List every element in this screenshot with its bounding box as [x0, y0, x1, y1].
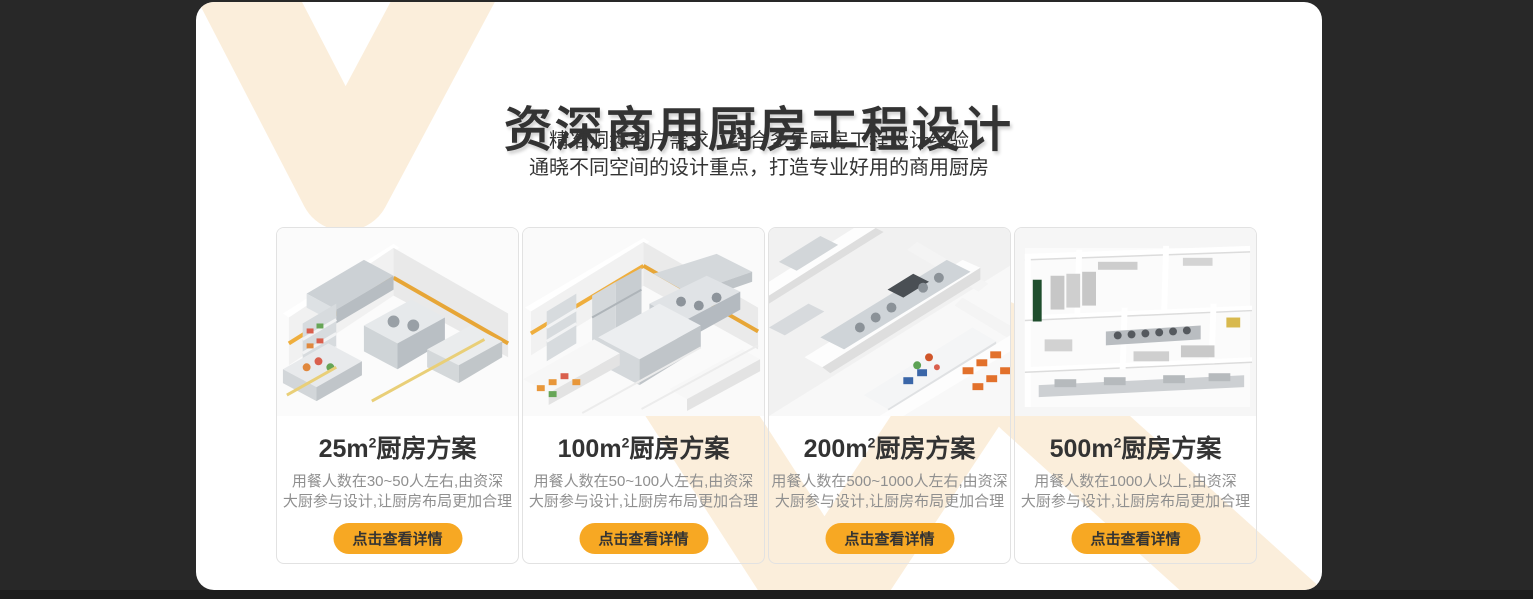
page-background: 资深商用厨房工程设计 精准洞悉客户需求，结合多年厨房工程设计经验 通晓不同空间的…: [0, 0, 1533, 599]
plan-card-title: 200m2厨房方案: [769, 429, 1010, 465]
plan-area: 200m: [804, 435, 868, 463]
page-subtitle: 精准洞悉客户需求，结合多年厨房工程设计经验 通晓不同空间的设计重点，打造专业好用…: [196, 128, 1322, 182]
kitchen-render-200sqm: [769, 228, 1010, 416]
content-panel: 资深商用厨房工程设计 精准洞悉客户需求，结合多年厨房工程设计经验 通晓不同空间的…: [196, 2, 1322, 590]
plan-area: 25m: [319, 435, 369, 463]
view-details-button[interactable]: 点击查看详情: [333, 523, 462, 554]
plan-area: 500m: [1050, 435, 1114, 463]
plan-card-description: 用餐人数在1000人以上,由资深 大厨参与设计,让厨房布局更加合理: [1015, 472, 1256, 512]
desc-line-2: 大厨参与设计,让厨房布局更加合理: [523, 492, 764, 512]
kitchen-floorplan-render-icon: [1015, 228, 1256, 416]
plan-card-title: 25m2厨房方案: [277, 429, 518, 465]
plan-title-suffix: 厨房方案: [1121, 435, 1221, 463]
plan-title-suffix: 厨房方案: [629, 435, 729, 463]
desc-line-1: 用餐人数在1000人以上,由资深: [1015, 472, 1256, 492]
desc-line-2: 大厨参与设计,让厨房布局更加合理: [769, 492, 1010, 512]
plan-card-description: 用餐人数在50~100人左右,由资深 大厨参与设计,让厨房布局更加合理: [523, 472, 764, 512]
plan-card-title: 500m2厨房方案: [1015, 429, 1256, 465]
kitchen-render-25sqm: [277, 228, 518, 416]
plan-card-description: 用餐人数在500~1000人左右,由资深 大厨参与设计,让厨房布局更加合理: [769, 472, 1010, 512]
kitchen-3d-render-icon: [523, 228, 764, 416]
plan-cards-row: 25m2厨房方案 用餐人数在30~50人左右,由资深 大厨参与设计,让厨房布局更…: [276, 227, 1258, 564]
plan-card-25sqm: 25m2厨房方案 用餐人数在30~50人左右,由资深 大厨参与设计,让厨房布局更…: [276, 227, 519, 564]
desc-line-1: 用餐人数在500~1000人左右,由资深: [769, 472, 1010, 492]
plan-title-suffix: 厨房方案: [875, 435, 975, 463]
subtitle-line-1: 精准洞悉客户需求，结合多年厨房工程设计经验: [196, 128, 1322, 155]
desc-line-1: 用餐人数在30~50人左右,由资深: [277, 472, 518, 492]
plan-card-title: 100m2厨房方案: [523, 429, 764, 465]
subtitle-line-2: 通晓不同空间的设计重点，打造专业好用的商用厨房: [196, 155, 1322, 182]
view-details-button[interactable]: 点击查看详情: [825, 523, 954, 554]
plan-card-description: 用餐人数在30~50人左右,由资深 大厨参与设计,让厨房布局更加合理: [277, 472, 518, 512]
kitchen-render-500sqm: [1015, 228, 1256, 416]
bottom-dark-band: [0, 590, 1533, 599]
plan-card-500sqm: 500m2厨房方案 用餐人数在1000人以上,由资深 大厨参与设计,让厨房布局更…: [1014, 227, 1257, 564]
kitchen-3d-render-icon: [277, 228, 518, 416]
plan-title-suffix: 厨房方案: [376, 435, 476, 463]
plan-card-200sqm: 200m2厨房方案 用餐人数在500~1000人左右,由资深 大厨参与设计,让厨…: [768, 227, 1011, 564]
view-details-button[interactable]: 点击查看详情: [1071, 523, 1200, 554]
view-details-button[interactable]: 点击查看详情: [579, 523, 708, 554]
plan-area: 100m: [558, 435, 622, 463]
desc-line-2: 大厨参与设计,让厨房布局更加合理: [277, 492, 518, 512]
kitchen-3d-render-icon: [769, 228, 1010, 416]
desc-line-1: 用餐人数在50~100人左右,由资深: [523, 472, 764, 492]
kitchen-render-100sqm: [523, 228, 764, 416]
desc-line-2: 大厨参与设计,让厨房布局更加合理: [1015, 492, 1256, 512]
plan-card-100sqm: 100m2厨房方案 用餐人数在50~100人左右,由资深 大厨参与设计,让厨房布…: [522, 227, 765, 564]
